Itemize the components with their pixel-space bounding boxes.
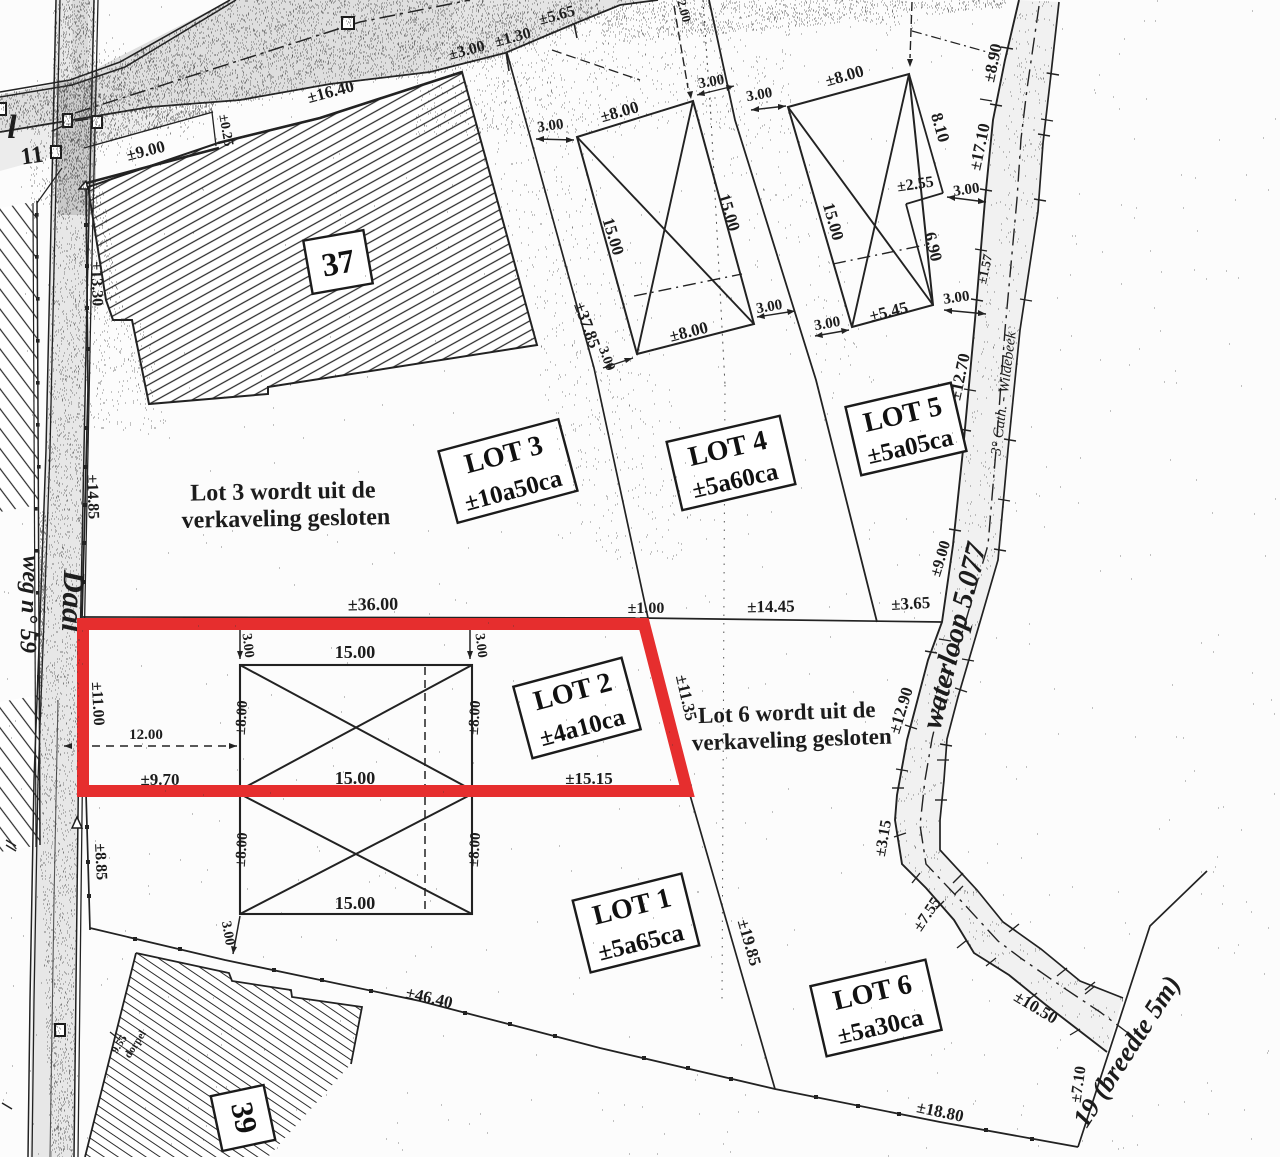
svg-text:±8.85: ±8.85 [91,843,110,881]
svg-text:±8.00: ±8.00 [466,832,484,868]
svg-text:37: 37 [319,243,358,284]
svg-text:weg n° 59: weg n° 59 [14,555,43,653]
svg-text:±11.00: ±11.00 [88,681,107,726]
svg-text:±14.85: ±14.85 [83,474,102,519]
svg-text:11: 11 [19,142,45,171]
svg-text:±8.00: ±8.00 [233,832,251,868]
svg-text:Lot 3 wordt uit de: Lot 3 wordt uit de [190,477,376,506]
svg-text:15.00: 15.00 [335,893,376,913]
svg-text:3.00: 3.00 [472,633,490,659]
svg-text:±8.00: ±8.00 [233,700,251,736]
svg-text:12.00: 12.00 [129,727,163,743]
svg-text:±13.30: ±13.30 [87,261,106,306]
svg-text:15.00: 15.00 [335,642,376,662]
svg-text:±8.00: ±8.00 [466,700,484,736]
svg-text:verkaveling gesloten: verkaveling gesloten [181,504,390,534]
svg-text:±3.65: ±3.65 [891,593,931,614]
svg-text:±36.00: ±36.00 [348,594,399,615]
svg-text:±14.45: ±14.45 [747,597,795,617]
svg-text:3.00: 3.00 [239,633,257,659]
svg-text:±1.00: ±1.00 [628,600,665,617]
